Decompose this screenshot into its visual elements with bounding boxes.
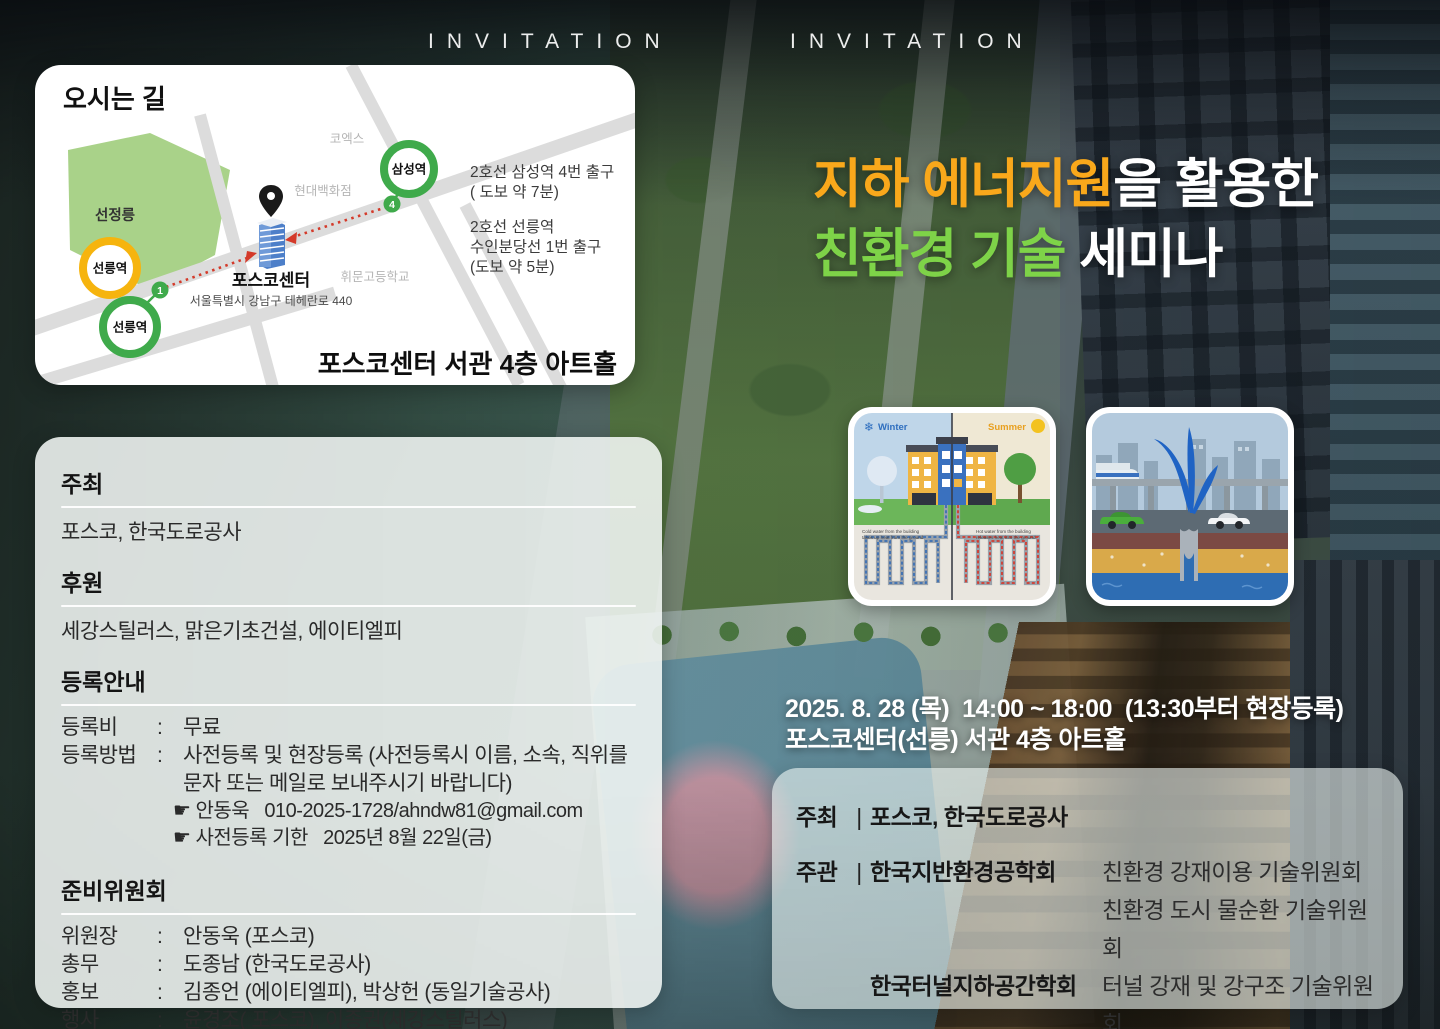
park-label: 선정릉 bbox=[95, 206, 135, 224]
exit-badge-1-label: 1 bbox=[157, 285, 163, 297]
organizers-card: 주최 | 포스코, 한국도로공사 주관 | 한국지반환경공학회 친환경 강재이용… bbox=[772, 768, 1403, 1009]
title-line-2: 친환경 기술 세미나 bbox=[813, 220, 1433, 290]
building-address-label: 서울특별시 강남구 테헤란로 440 bbox=[190, 294, 353, 308]
host-body: 포스코, 한국도로공사 bbox=[61, 516, 636, 546]
svg-text:releases heat into the ground.: releases heat into the ground. bbox=[976, 535, 1037, 540]
svg-text:수인분당선 1번 출구: 수인분당선 1번 출구 bbox=[470, 238, 601, 256]
winter-label: Winter bbox=[878, 422, 908, 433]
sun-icon bbox=[1031, 419, 1045, 433]
groundwater-illustration-card bbox=[1086, 407, 1294, 606]
svg-text:삼성역: 삼성역 bbox=[392, 162, 427, 177]
summer-label: Summer bbox=[988, 422, 1026, 433]
divider bbox=[61, 913, 636, 915]
fee-row: 등록비 : 무료 bbox=[61, 714, 636, 742]
host-heading: 주최 bbox=[61, 465, 636, 499]
invitation-text-right: INVITATION bbox=[790, 30, 1035, 54]
divider bbox=[61, 605, 636, 607]
committee-name: 터널 강재 및 강구조 기술위원회 bbox=[1102, 967, 1379, 1029]
station-seolleung-green: 선릉역 bbox=[103, 300, 157, 354]
seminar-info-card: 주최 포스코, 한국도로공사 후원 세강스틸러스, 맑은기초건설, 에이티엘피 … bbox=[35, 437, 662, 1008]
academy-name: 한국터널지하공간학회 bbox=[870, 967, 1102, 1029]
committee-row: 행사 : 윤경조( 포스코), 이종권(세강스틸러스)백민수 (맑은기초건설) bbox=[61, 1007, 636, 1029]
org-organizer-row-1: 주관 | 한국지반환경공학회 친환경 강재이용 기술위원회 bbox=[796, 853, 1379, 891]
svg-text:선릉역: 선릉역 bbox=[113, 320, 148, 335]
svg-text:2호선 선릉역: 2호선 선릉역 bbox=[470, 218, 554, 236]
snow-patch bbox=[858, 505, 882, 513]
registration-heading: 등록안내 bbox=[61, 663, 636, 697]
directions-text: 2호선 삼성역 4번 출구 ( 도보 약 7분) 2호선 선릉역 수인분당선 1… bbox=[470, 163, 614, 276]
poi-coex: 코엑스 bbox=[330, 132, 365, 146]
spacer bbox=[796, 836, 1379, 853]
sponsor-heading: 후원 bbox=[61, 564, 636, 598]
invitation-text-left: INVITATION bbox=[428, 30, 673, 54]
svg-text:takes up heat from the ground.: takes up heat from the ground. bbox=[862, 535, 925, 540]
svg-text:선릉역: 선릉역 bbox=[93, 261, 128, 276]
seminar-title: 지하 에너지원을 활용한 친환경 기술 세미나 bbox=[813, 150, 1433, 290]
directions-map: 삼성역 4 선릉역 선릉역 1 선정릉 bbox=[35, 65, 635, 385]
org-organizer-row-2: 친환경 도시 물순환 기술위원회 bbox=[796, 891, 1379, 967]
map-venue-label: 포스코센터 서관 4층 아트홀 bbox=[318, 349, 617, 379]
geothermal-illustration-card: ❄ Winter Summer Cold water from the buil… bbox=[848, 407, 1056, 606]
method-row: 등록방법 : 사전등록 및 현장등록 (사전등록시 이름, 소속, 직위를문자 … bbox=[61, 742, 636, 798]
winter-tree bbox=[867, 456, 897, 486]
committee-heading: 준비위원회 bbox=[61, 872, 636, 906]
exit-badge-4-label: 4 bbox=[389, 199, 395, 211]
registration-note-contact: ☛ 안동욱 010-2025-1728/ahndw81@gmail.com bbox=[173, 798, 636, 825]
svg-text:Cold water from the building: Cold water from the building bbox=[862, 529, 920, 534]
poi-whimoon: 휘문고등학교 bbox=[340, 270, 409, 284]
location-pin-icon bbox=[259, 185, 283, 217]
summer-tree bbox=[1004, 453, 1036, 485]
committee-name: 친환경 도시 물순환 기술위원회 bbox=[1102, 891, 1379, 967]
event-datetime-block: 2025. 8. 28 (목) 14:00 ~ 18:00 (13:30부터 현… bbox=[785, 694, 1343, 756]
academy-name: 한국지반환경공학회 bbox=[870, 853, 1102, 891]
svg-text:( 도보 약 7분): ( 도보 약 7분) bbox=[470, 183, 559, 201]
directions-map-card: 삼성역 4 선릉역 선릉역 1 선정릉 bbox=[35, 65, 635, 385]
poi-hyundai: 현대백화점 bbox=[294, 184, 352, 198]
svg-text:(도보 약 5분): (도보 약 5분) bbox=[470, 258, 555, 276]
divider bbox=[61, 506, 636, 508]
svg-text:Hot water from the building: Hot water from the building bbox=[976, 529, 1031, 534]
title-line-1: 지하 에너지원을 활용한 bbox=[813, 150, 1433, 220]
station-seolleung-yellow: 선릉역 bbox=[83, 241, 137, 295]
station-samseong: 삼성역 bbox=[384, 144, 434, 194]
committee-row: 위원장 : 안동욱 (포스코) bbox=[61, 923, 636, 951]
committee-row: 홍보 : 김종언 (에이티엘피), 박상헌 (동일기술공사) bbox=[61, 979, 636, 1007]
event-venue: 포스코센터(선릉) 서관 4층 아트홀 bbox=[785, 725, 1343, 756]
committee-name: 친환경 강재이용 기술위원회 bbox=[1102, 853, 1379, 891]
building-name-label: 포스코센터 bbox=[232, 271, 310, 290]
org-host-row: 주최 | 포스코, 한국도로공사 bbox=[796, 798, 1379, 836]
map-card-title: 오시는 길 bbox=[63, 84, 166, 114]
sponsor-body: 세강스틸러스, 맑은기초건설, 에이티엘피 bbox=[61, 615, 636, 645]
event-datetime: 2025. 8. 28 (목) 14:00 ~ 18:00 (13:30부터 현… bbox=[785, 694, 1343, 725]
divider bbox=[61, 704, 636, 706]
org-organizer-row-3: 한국터널지하공간학회 터널 강재 및 강구조 기술위원회 bbox=[796, 967, 1379, 1029]
registration-note-deadline: ☛ 사전등록 기한 2025년 8월 22일(금) bbox=[173, 825, 636, 852]
svg-text:2호선 삼성역 4번 출구: 2호선 삼성역 4번 출구 bbox=[470, 163, 614, 181]
committee-row: 총무 : 도종남 (한국도로공사) bbox=[61, 951, 636, 979]
posco-center-building-icon bbox=[257, 218, 287, 269]
snowflake-icon: ❄ bbox=[864, 420, 874, 434]
